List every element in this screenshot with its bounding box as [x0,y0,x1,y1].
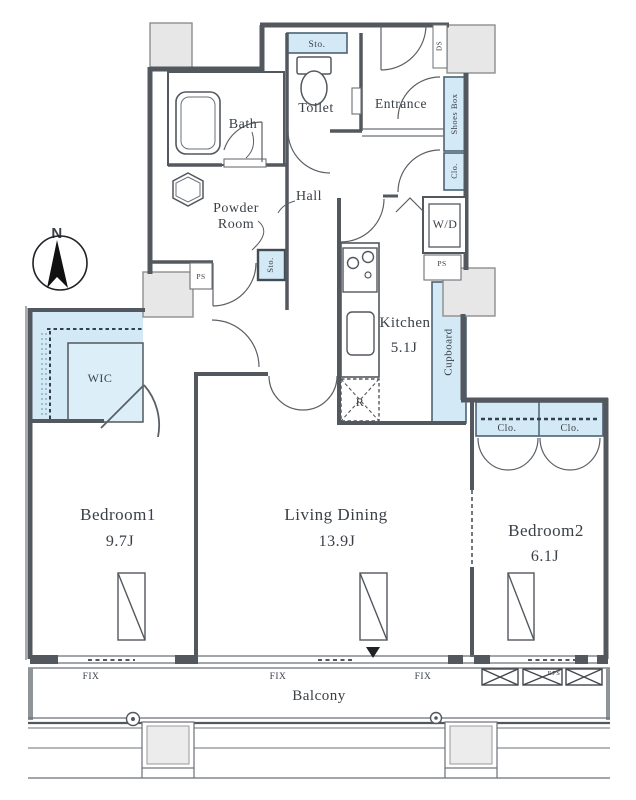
refrigerator-label: R [356,395,365,409]
ds-label: DS [436,41,444,51]
door-living-double [269,376,337,410]
entrance-step-lines [362,129,444,136]
door-bedroom1 [212,320,259,367]
bedroom2-label: Bedroom2 [508,521,584,540]
bedroom2-size: 6.1J [531,548,559,565]
ps-left-label: PS [196,272,205,281]
door-powder-room [213,263,256,306]
kitchen-sink [347,312,374,355]
clo-entrance-label: Clo. [450,163,459,179]
door-closet-entrance [398,150,440,192]
balcony-pillar-left [142,722,194,778]
kitchen-label: Kitchen [380,315,431,331]
pillar-top-left [150,23,192,68]
stove [343,248,377,292]
living-dining-label: Living Dining [284,505,387,524]
sto-hall-label: Sto. [265,257,275,272]
fix-label-1: FIX [83,672,100,682]
powder-room-label-1: Powder [213,201,259,216]
louver-boxes [482,669,602,685]
powder-sink [173,173,203,206]
door-toilet [288,131,330,173]
fix-label-3: FIX [415,672,432,682]
cupboard-label: Cupboard [443,328,455,375]
door-closet-bed2-right [540,438,600,470]
bedroom1-label: Bedroom1 [80,505,156,524]
kitchen-size: 5.1J [391,340,418,356]
bedroom1-size: 9.7J [106,533,134,550]
pillar-top-right [447,25,495,73]
balcony-pillar-right [445,722,497,778]
sto-top-label: Sto. [308,40,325,50]
rail-post-left-dot [131,717,135,721]
balcony [28,647,610,778]
balcony-partition-left [28,668,33,720]
shoes-box-label: Shoes Box [449,93,459,134]
door-closet-bed2-left [478,438,538,470]
compass-n-label: N [51,225,62,242]
door-kitchen [341,199,384,242]
wic-label: WIC [88,371,113,385]
bathtub [176,92,220,154]
wd-label: W/D [433,217,458,231]
door-wd-folding [396,198,424,212]
eps-label: EPS [548,670,561,677]
toilet-label: Toilet [298,101,333,116]
ps-right-label: PS [437,259,446,268]
leader-bath [246,132,254,158]
toilet-bowl [301,71,327,105]
fix-label-2: FIX [270,672,287,682]
floor-plan: N Sto. Toilet Entrance Bath Shoes Box Cl… [0,0,636,800]
rail-post-right-dot [434,716,438,720]
clo-bed2-left-label: Clo. [498,423,517,434]
windows-band [30,656,608,663]
pillar-mid-left [143,272,193,317]
compass: N [33,225,87,290]
living-dining-size: 13.9J [319,533,356,550]
toilet-panel [352,88,361,114]
entrance-label: Entrance [375,96,427,111]
bath-label: Bath [229,117,257,132]
hall-label: Hall [296,189,322,204]
floor-plan-svg: N Sto. Toilet Entrance Bath Shoes Box Cl… [0,0,636,800]
compass-needle [47,240,68,288]
door-entrance [381,25,426,70]
powder-room-label-2: Room [218,217,254,232]
clo-bed2-right-label: Clo. [561,423,580,434]
bath-step [224,159,266,167]
balcony-label: Balcony [292,688,346,704]
balcony-partition-right [606,668,610,720]
